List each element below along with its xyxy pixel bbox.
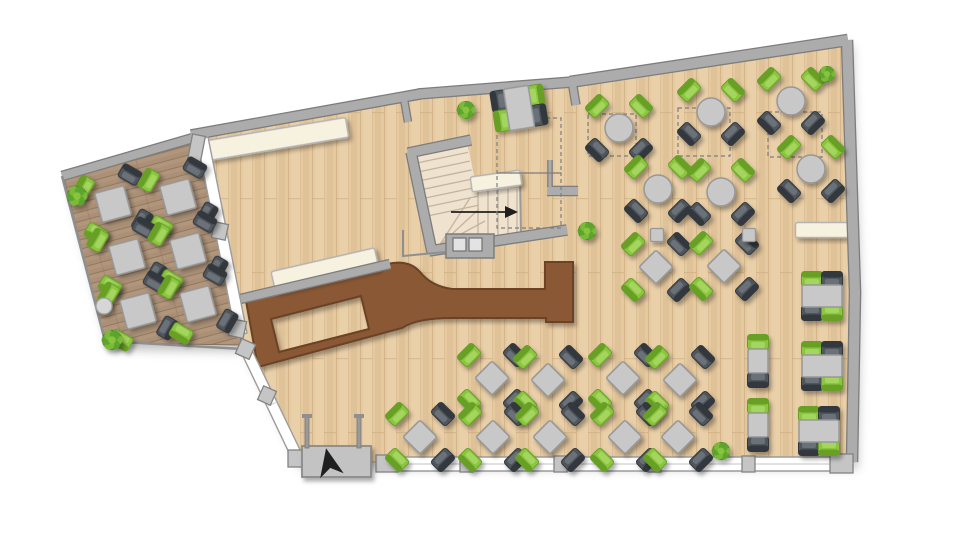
plant-top	[718, 448, 725, 455]
fixture-square	[469, 238, 482, 251]
table	[802, 355, 842, 377]
table-round	[697, 98, 725, 126]
chair-back	[802, 385, 823, 391]
chair-cushion	[802, 414, 816, 420]
chair-cushion	[751, 374, 765, 380]
entrance-mat	[302, 446, 371, 477]
floor-plan-page	[0, 0, 960, 556]
table	[748, 349, 768, 373]
chair-green	[748, 399, 769, 414]
table	[799, 420, 839, 442]
chair-back	[822, 272, 843, 278]
table	[95, 186, 132, 223]
table	[802, 285, 842, 307]
chair-cushion	[825, 349, 839, 355]
chair-back	[802, 272, 823, 278]
chair-green	[748, 335, 769, 350]
chair-cushion	[805, 307, 819, 313]
chair-cushion	[805, 377, 819, 383]
chair-cushion	[751, 406, 765, 412]
table-round	[777, 87, 805, 115]
dining-set-rect4h	[802, 272, 843, 321]
plant-top	[463, 107, 470, 114]
chair-cushion	[751, 438, 765, 444]
fixture-square	[453, 238, 466, 251]
door-post	[357, 416, 361, 448]
chair-back	[802, 342, 823, 348]
wall-pier-block	[830, 454, 853, 473]
side-table-round	[96, 298, 112, 314]
wall	[572, 81, 576, 105]
chair-cushion	[805, 279, 819, 285]
chair-cushion	[751, 342, 765, 348]
chair-back	[748, 446, 769, 452]
dining-set-tt4	[490, 83, 549, 133]
chair-back	[799, 450, 820, 456]
wall	[404, 99, 408, 122]
chair-cushion	[805, 349, 819, 355]
chair-back	[802, 315, 823, 321]
stair-rail	[520, 178, 521, 237]
chair-cushion	[825, 307, 839, 313]
chair-back	[748, 335, 769, 341]
door-post	[305, 416, 309, 448]
plant-top	[824, 71, 830, 77]
chair-cushion	[822, 442, 836, 448]
door-post-cap	[302, 414, 312, 418]
chair-dark	[748, 437, 769, 452]
building-group	[62, 40, 855, 478]
stool	[743, 229, 756, 242]
chair-back	[822, 385, 843, 391]
stool	[651, 229, 664, 242]
wall-pier-block	[742, 456, 755, 472]
table	[748, 413, 768, 437]
chair-cushion	[825, 279, 839, 285]
plant-top	[73, 192, 81, 200]
chair-cushion	[825, 377, 839, 383]
table	[160, 179, 197, 216]
dining-set-rect4h	[802, 342, 843, 391]
chair-back	[748, 382, 769, 388]
plant-top	[584, 228, 591, 235]
dining-set-sq2	[748, 335, 769, 388]
chair-back	[822, 315, 843, 321]
chair-back	[822, 342, 843, 348]
plant-top	[108, 336, 116, 344]
chair-cushion	[802, 442, 816, 448]
bench	[796, 223, 853, 238]
chair-cushion	[822, 414, 836, 420]
table-round	[605, 114, 633, 142]
bench-seat	[796, 223, 853, 238]
door-post-cap	[354, 414, 364, 418]
chair-dark	[748, 373, 769, 388]
table-round	[797, 155, 825, 183]
chair-back	[748, 399, 769, 405]
dining-set-sq2	[748, 399, 769, 452]
floor-plan-svg	[0, 0, 960, 556]
chair-back	[819, 450, 840, 456]
table-round	[707, 178, 735, 206]
table-round	[644, 175, 672, 203]
dining-set-rect4h	[799, 407, 840, 456]
chair-back	[819, 407, 840, 413]
chair-back	[799, 407, 820, 413]
